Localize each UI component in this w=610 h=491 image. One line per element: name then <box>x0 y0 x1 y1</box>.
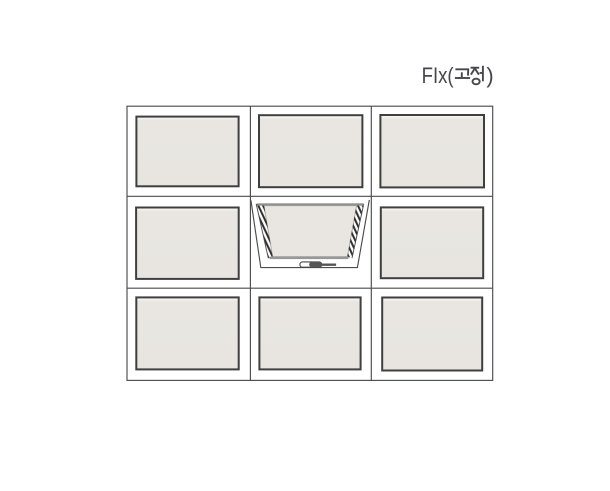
svg-text:FIx(: FIx( <box>422 63 455 88</box>
svg-text:): ) <box>486 63 493 88</box>
